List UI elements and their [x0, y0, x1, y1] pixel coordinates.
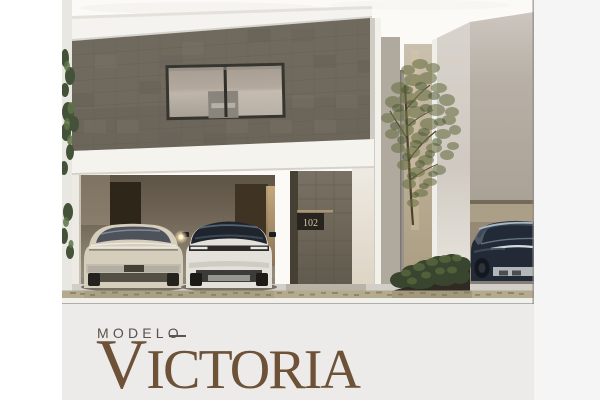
svg-text:102: 102 — [303, 218, 318, 229]
